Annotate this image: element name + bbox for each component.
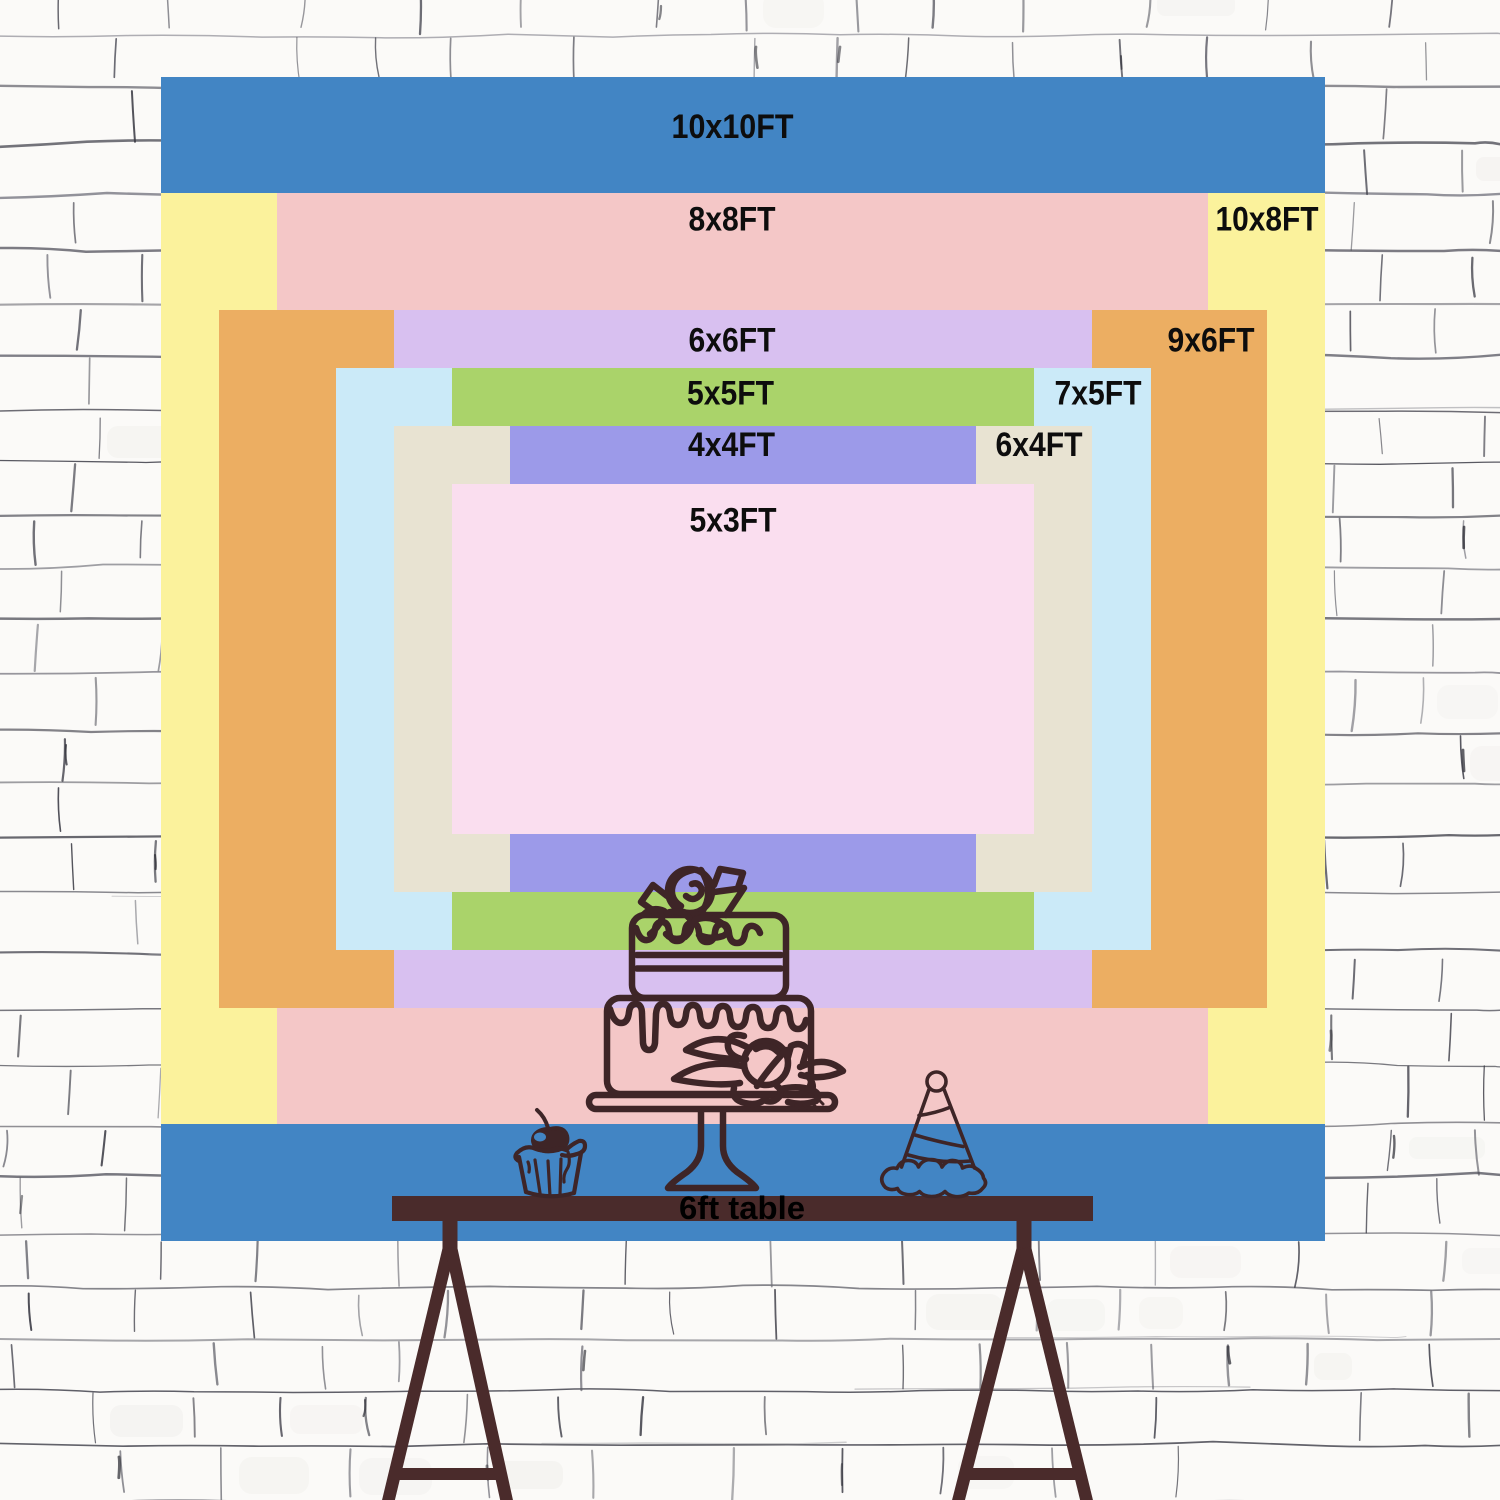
svg-text:5x3FT: 5x3FT — [690, 502, 777, 540]
svg-text:7x5FT: 7x5FT — [1055, 375, 1142, 413]
svg-text:10x8FT: 10x8FT — [1216, 201, 1319, 239]
svg-text:6x6FT: 6x6FT — [689, 322, 776, 360]
svg-text:6ft table: 6ft table — [679, 1190, 805, 1226]
svg-text:4x4FT: 4x4FT — [688, 426, 775, 464]
svg-text:10x10FT: 10x10FT — [672, 108, 794, 146]
svg-text:9x6FT: 9x6FT — [1168, 322, 1255, 360]
svg-text:6x4FT: 6x4FT — [996, 426, 1083, 464]
svg-text:5x5FT: 5x5FT — [687, 375, 774, 413]
svg-text:8x8FT: 8x8FT — [689, 201, 776, 239]
